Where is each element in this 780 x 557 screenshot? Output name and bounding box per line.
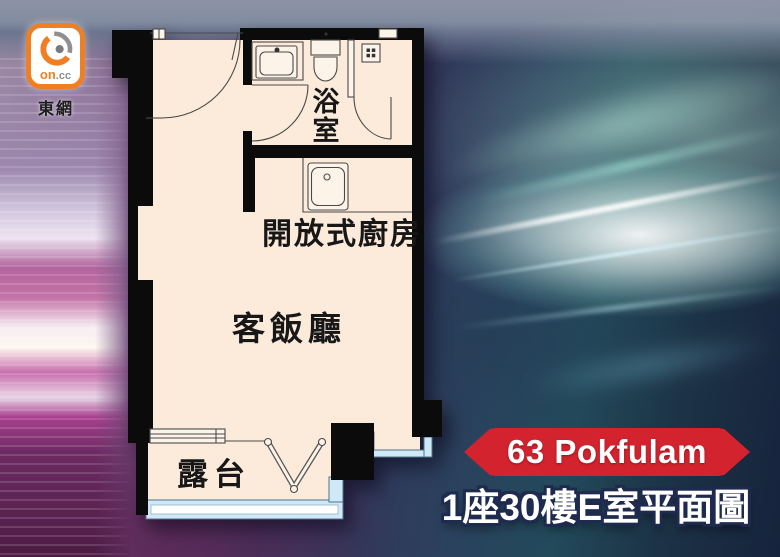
oncc-logo: on.cc	[26, 23, 85, 89]
wall-notch	[379, 29, 397, 38]
balcony-label: 露台	[177, 457, 251, 493]
project-name: 63 Pokfulam	[507, 433, 707, 471]
oncc-logo-text: on.cc	[40, 69, 71, 82]
bay-glass	[367, 450, 432, 457]
oncc-swirl-icon	[34, 31, 78, 69]
bay-glass	[424, 437, 432, 457]
living-window	[150, 429, 225, 443]
faucet	[275, 48, 280, 53]
toilet-bowl	[314, 57, 337, 81]
plan-title: 1座30樓E室平面圖	[415, 477, 777, 531]
kitchen-sink	[308, 163, 348, 210]
toilet-tank	[311, 40, 340, 55]
news-graphic: 浴 室 開放式廚房 客飯廳 露台 on.cc 東網 63 Pokfulam 1座…	[0, 0, 780, 557]
bathroom-partition	[348, 40, 354, 97]
bathroom-label-char2: 室	[313, 115, 340, 147]
project-name-banner: 63 Pokfulam	[464, 428, 750, 476]
site-name: 東網	[22, 95, 90, 119]
living-dining-label: 客飯廳	[232, 309, 346, 348]
utility-appliance	[362, 44, 380, 62]
open-kitchen-label: 開放式廚房	[262, 217, 422, 252]
bathroom-label-char1: 浴	[313, 87, 341, 118]
